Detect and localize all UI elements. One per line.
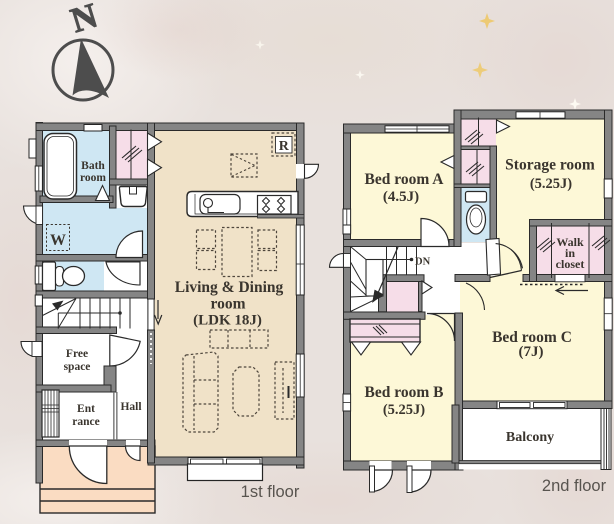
svg-text:2nd floor: 2nd floor — [542, 477, 607, 495]
svg-text:(5.25J): (5.25J) — [530, 176, 572, 192]
svg-text:Ent: Ent — [77, 403, 95, 415]
svg-text:Hall: Hall — [120, 401, 141, 413]
svg-text:(4.5J): (4.5J) — [383, 189, 419, 205]
svg-text:(LDK 18J): (LDK 18J) — [193, 313, 262, 329]
svg-text:room: room — [210, 296, 245, 313]
svg-text:Bed room B: Bed room B — [365, 384, 444, 401]
svg-text:DN: DN — [415, 257, 431, 268]
svg-text:Bed room A: Bed room A — [365, 171, 445, 188]
svg-text:Storage room: Storage room — [505, 157, 595, 174]
svg-text:closet: closet — [556, 257, 585, 271]
svg-text:Free: Free — [66, 348, 88, 360]
svg-text:Balcony: Balcony — [506, 430, 554, 445]
svg-text:(5.25J): (5.25J) — [383, 402, 425, 418]
svg-text:(7J): (7J) — [519, 344, 544, 360]
svg-text:Living & Dining: Living & Dining — [175, 279, 284, 296]
svg-text:1st floor: 1st floor — [241, 483, 300, 501]
svg-text:W: W — [50, 232, 66, 249]
svg-text:R: R — [279, 139, 290, 154]
svg-text:rance: rance — [72, 416, 99, 428]
svg-text:room: room — [80, 172, 106, 184]
svg-text:Bath: Bath — [81, 160, 105, 172]
svg-text:space: space — [64, 361, 91, 373]
